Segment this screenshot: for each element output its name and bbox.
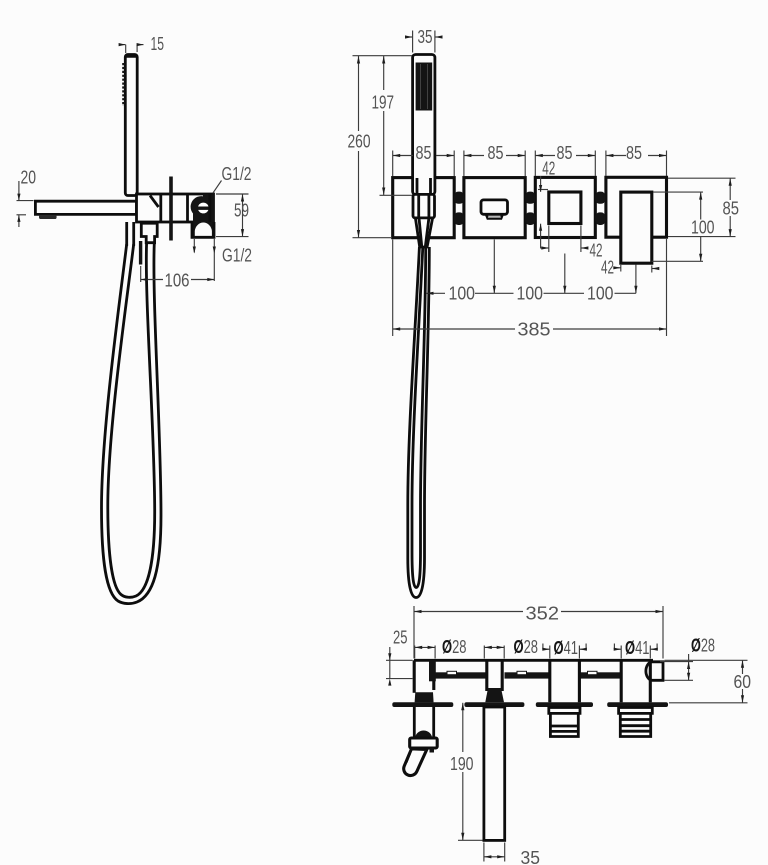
svg-text:35: 35: [521, 848, 541, 865]
svg-text:Ø28: Ø28: [442, 637, 467, 657]
svg-text:35: 35: [418, 27, 433, 47]
svg-text:85: 85: [723, 199, 740, 219]
svg-text:42: 42: [542, 159, 555, 179]
svg-text:385: 385: [518, 320, 551, 340]
svg-text:Ø41: Ø41: [554, 638, 579, 658]
svg-text:100: 100: [449, 284, 476, 304]
svg-text:15: 15: [151, 34, 165, 54]
svg-text:60: 60: [734, 672, 752, 692]
svg-text:25: 25: [393, 628, 408, 648]
svg-text:Ø41: Ø41: [625, 638, 650, 658]
svg-text:100: 100: [691, 218, 715, 238]
svg-text:190: 190: [450, 754, 474, 774]
svg-text:106: 106: [165, 271, 190, 291]
svg-text:Ø28: Ø28: [691, 636, 715, 656]
svg-text:G1/2: G1/2: [222, 246, 252, 266]
svg-text:42: 42: [601, 258, 614, 278]
svg-text:59: 59: [234, 201, 249, 221]
svg-text:100: 100: [587, 284, 614, 304]
svg-text:85: 85: [557, 143, 573, 163]
svg-text:85: 85: [416, 143, 432, 163]
svg-text:20: 20: [21, 168, 37, 188]
svg-text:Ø28: Ø28: [514, 637, 539, 657]
svg-text:G1/2: G1/2: [222, 164, 252, 184]
svg-text:100: 100: [517, 284, 544, 304]
svg-text:260: 260: [348, 132, 371, 152]
svg-text:352: 352: [526, 604, 560, 624]
svg-text:85: 85: [488, 143, 504, 163]
svg-text:197: 197: [372, 93, 395, 113]
svg-text:85: 85: [626, 143, 642, 163]
